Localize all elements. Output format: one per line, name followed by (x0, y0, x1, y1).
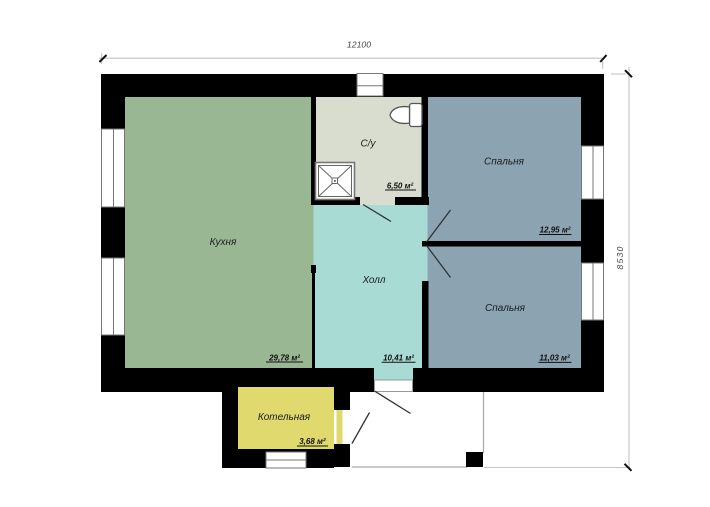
svg-text:3,68 м²: 3,68 м² (299, 437, 326, 446)
svg-text:С/у: С/у (361, 139, 377, 150)
svg-text:Спальня: Спальня (485, 303, 526, 314)
svg-text:6,50 м²: 6,50 м² (387, 181, 414, 190)
svg-text:11,03 м²: 11,03 м² (539, 353, 570, 362)
svg-text:10,41 м²: 10,41 м² (383, 354, 414, 363)
svg-text:29,78 м²: 29,78 м² (268, 354, 300, 363)
svg-text:12100: 12100 (347, 40, 371, 50)
svg-text:Холл: Холл (361, 275, 385, 286)
svg-text:12,95 м²: 12,95 м² (540, 225, 571, 234)
svg-text:Спальня: Спальня (484, 157, 525, 168)
svg-text:Кухня: Кухня (210, 237, 237, 248)
svg-text:Котельная: Котельная (258, 412, 311, 423)
svg-text:8530: 8530 (615, 245, 625, 269)
